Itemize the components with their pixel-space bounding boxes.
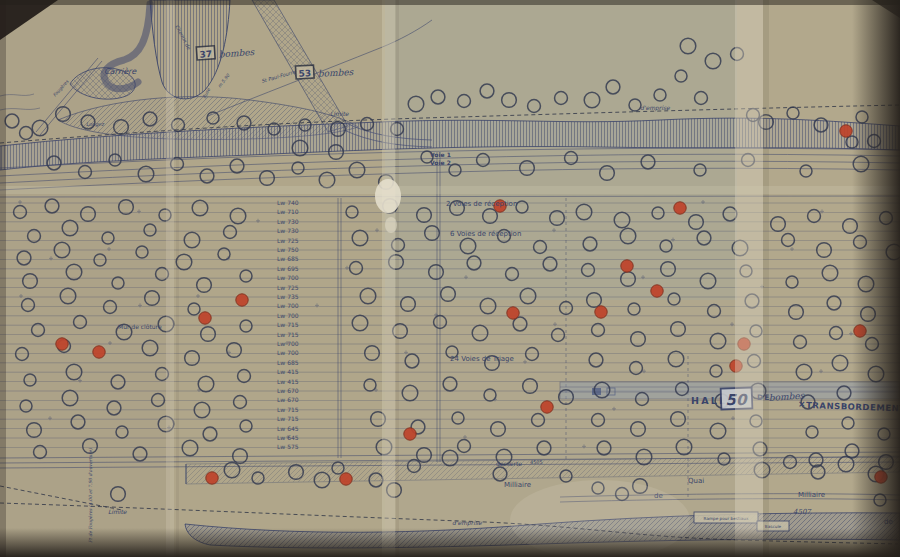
bombing-map-svg: Lw 740Lw 710Lw 730Lw 730Lw 725Lw 750Lw 6… <box>0 0 900 557</box>
map-photograph: Lw 740Lw 710Lw 730Lw 730Lw 725Lw 750Lw 6… <box>0 0 900 557</box>
photo-artifacts <box>0 0 900 557</box>
